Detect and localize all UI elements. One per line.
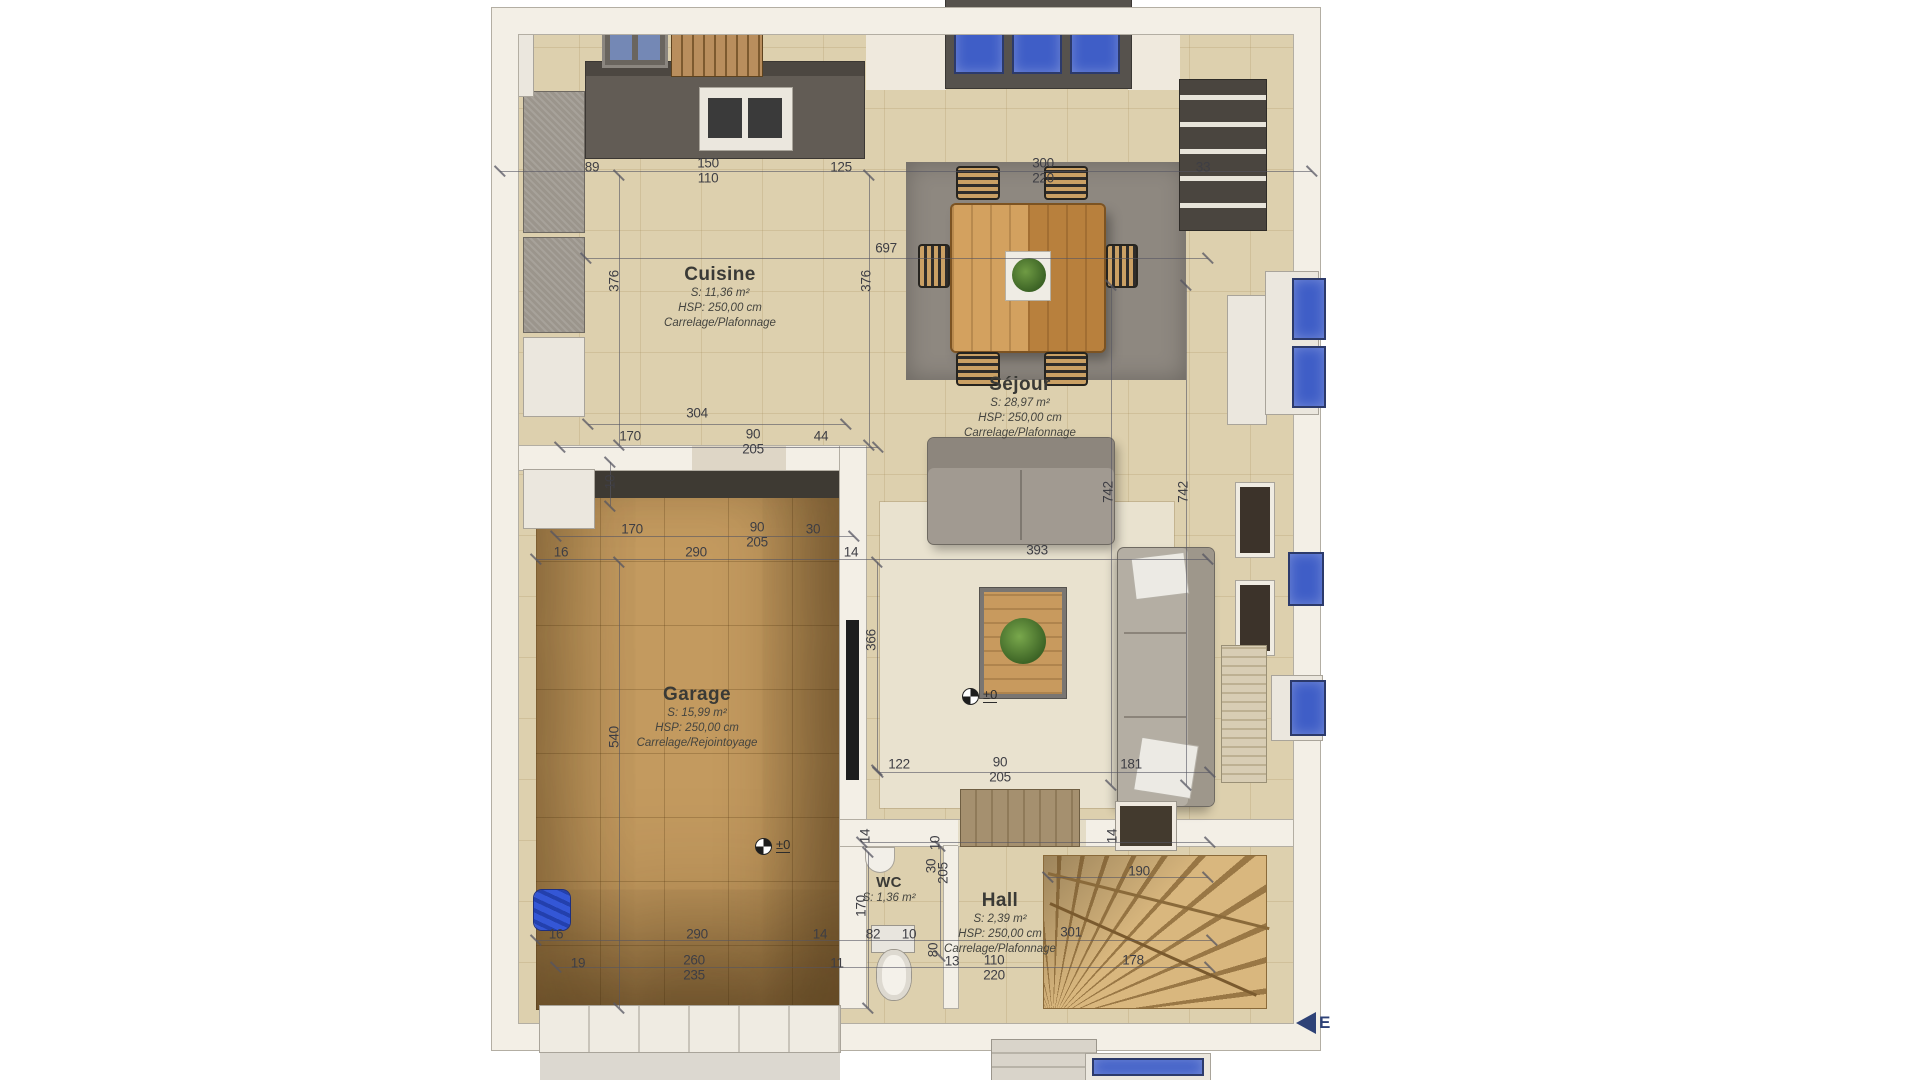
dimension-label: 14 <box>844 545 858 560</box>
dimension-label: 80 <box>926 943 941 957</box>
kitchen-tall-unit <box>524 238 584 332</box>
sejour-top-wall <box>866 34 946 90</box>
wall-picture <box>1240 585 1270 651</box>
dimension-label: 10 <box>928 836 943 850</box>
dimension-label: 300 <box>1032 156 1054 171</box>
sink-basin-right <box>748 98 782 138</box>
room-finish: Carrelage/Plafonnage <box>664 316 776 331</box>
level-marker-icon <box>755 838 772 855</box>
pergola-planks <box>672 12 762 76</box>
dimension-label: 301 <box>1060 925 1082 940</box>
wall-picture <box>1240 487 1270 553</box>
garage-door <box>540 1006 840 1052</box>
dining-chair <box>1108 246 1136 286</box>
window-pane <box>610 18 632 60</box>
dimension-label: 89 <box>585 160 599 175</box>
room-height: HSP: 250,00 cm <box>637 721 758 736</box>
porch-glass-panel <box>1070 8 1120 74</box>
room-label-hall: Hall S: 2,39 m² HSP: 250,00 cm Carrelage… <box>944 890 1056 957</box>
dimension-label: 190 <box>1128 864 1150 879</box>
garage-back-wall-shadow <box>556 470 840 498</box>
kitchen-window <box>602 10 668 68</box>
sofa-horizontal <box>928 438 1114 544</box>
dimension-label: 16 <box>554 545 568 560</box>
dimension-label: 16 <box>549 927 563 942</box>
dimension-label: 10 <box>603 475 618 489</box>
dimension-line <box>588 424 846 425</box>
room-name: Garage <box>637 684 758 706</box>
room-name: WC <box>862 874 915 891</box>
sofa-cushion-divider <box>1124 632 1186 634</box>
window-pane <box>638 18 660 60</box>
dimension-label: 376 <box>607 270 622 292</box>
level-marker: ±0 <box>755 838 790 855</box>
dimension-label: 14 <box>1105 829 1120 843</box>
corner-shelving-unit <box>1180 80 1266 230</box>
porch-glass-panel <box>1012 8 1062 74</box>
dimension-line <box>556 967 1210 968</box>
dimension-label: 170 <box>621 522 643 537</box>
dimension-label: 82 <box>866 927 880 942</box>
dimension-label: 697 <box>875 241 897 256</box>
dimension-line <box>619 562 620 1008</box>
compass-east-icon: E <box>1296 1012 1330 1034</box>
room-name: Cuisine <box>664 264 776 286</box>
dimension-line <box>1111 285 1112 785</box>
dimension-label: 376 <box>859 270 874 292</box>
dimension-line <box>878 772 1210 773</box>
dimension-label: 30 <box>924 859 939 873</box>
dimension-label: 44 <box>814 429 828 444</box>
dimension-label: 290 <box>685 545 707 560</box>
dimension-line <box>862 842 1210 843</box>
dimension-label: 170 <box>619 429 641 444</box>
sejour-top-wall <box>1128 34 1180 90</box>
room-finish: Carrelage/Plafonnage <box>964 426 1076 441</box>
sofa-cushion-divider <box>1124 716 1186 718</box>
blue-object <box>534 890 570 930</box>
porch-glass-panel <box>954 8 1004 74</box>
room-height: HSP: 250,00 cm <box>664 301 776 316</box>
dining-chair <box>958 168 998 198</box>
level-marker-label: ±0 <box>983 688 997 703</box>
table-plant <box>1012 258 1046 292</box>
kitchen-cabinet <box>524 338 584 416</box>
dimension-label: 235 <box>683 968 705 983</box>
dimension-label: 366 <box>864 629 879 651</box>
dining-chair <box>920 246 948 286</box>
room-name: Hall <box>944 890 1056 912</box>
dimension-label: 220 <box>983 968 1005 983</box>
dimension-label: 19 <box>571 956 585 971</box>
dimension-line <box>877 562 878 770</box>
dimension-line <box>869 175 870 445</box>
radiator-bench <box>1228 296 1266 424</box>
sink-basin-left <box>708 98 742 138</box>
dimension-label: 742 <box>1101 481 1116 503</box>
dimension-label: 205 <box>989 770 1011 785</box>
dimension-label: 11 <box>830 956 843 971</box>
window-blind <box>1222 646 1266 782</box>
room-label-garage: Garage S: 15,99 m² HSP: 250,00 cm Carrel… <box>637 684 758 751</box>
dimension-label: 540 <box>607 726 622 748</box>
window-right-1b <box>1292 346 1326 408</box>
room-label-sejour: Séjour S: 28,97 m² HSP: 250,00 cm Carrel… <box>964 374 1076 441</box>
dimension-label: 304 <box>686 406 708 421</box>
room-label-cuisine: Cuisine S: 11,36 m² HSP: 250,00 cm Carre… <box>664 264 776 331</box>
room-area: S: 2,39 m² <box>944 912 1056 927</box>
dimension-line <box>500 171 1312 172</box>
dimension-line <box>619 175 620 445</box>
dimension-label: 178 <box>1122 953 1144 968</box>
level-marker: ±0 <box>962 688 997 705</box>
window-right-1 <box>1292 278 1326 340</box>
dimension-label: 205 <box>742 442 764 457</box>
dimension-label: 260 <box>683 953 705 968</box>
sofa-cushion-divider <box>1020 470 1022 540</box>
entry-steps <box>992 1040 1096 1080</box>
window-bottom <box>1092 1058 1204 1076</box>
compass-flag <box>1296 1012 1316 1034</box>
fridge <box>524 92 584 232</box>
chimney-block <box>493 30 533 96</box>
room-finish: Carrelage/Rejointoyage <box>637 736 758 751</box>
dimension-label: 393 <box>1026 543 1048 558</box>
toilet-bowl <box>877 950 911 1000</box>
dimension-label: 33 <box>1196 160 1210 175</box>
dimension-label: 205 <box>746 535 768 550</box>
dimension-line <box>586 258 1208 259</box>
tv-screen <box>846 620 859 780</box>
floor-plan-canvas: Cuisine S: 11,36 m² HSP: 250,00 cm Carre… <box>0 0 1920 1080</box>
dimension-label: 742 <box>1176 481 1191 503</box>
dimension-label: 122 <box>888 757 910 772</box>
floor-plan: Cuisine S: 11,36 m² HSP: 250,00 cm Carre… <box>0 0 1920 1080</box>
dimension-label: 220 <box>1032 171 1054 186</box>
level-marker-label: ±0 <box>776 838 790 853</box>
dimension-label: 90 <box>993 755 1007 770</box>
room-height: HSP: 250,00 cm <box>964 411 1076 426</box>
dimension-label: 14 <box>858 829 873 843</box>
room-area: S: 1,36 m² <box>862 891 915 906</box>
dimension-label: 110 <box>698 171 719 186</box>
dimension-line <box>560 447 878 448</box>
room-name: Séjour <box>964 374 1076 396</box>
room-label-wc: WC S: 1,36 m² <box>862 874 915 906</box>
dimension-line <box>536 559 1208 560</box>
room-area: S: 28,97 m² <box>964 396 1076 411</box>
dimension-label: 14 <box>813 927 827 942</box>
dimension-label: 10 <box>902 927 916 942</box>
room-area: S: 11,36 m² <box>664 286 776 301</box>
entry-rug <box>961 790 1079 846</box>
floor-art-frame <box>1120 806 1172 846</box>
dimension-label: 181 <box>1120 757 1142 772</box>
window-right-3 <box>1290 680 1326 736</box>
room-finish: Carrelage/Plafonnage <box>944 942 1056 957</box>
window-right-2 <box>1288 552 1324 606</box>
garage-apron <box>540 1052 840 1080</box>
room-height: HSP: 250,00 cm <box>944 927 1056 942</box>
dimension-label: 30 <box>806 522 820 537</box>
dimension-label: 125 <box>830 160 852 175</box>
door-opening-garage <box>692 446 786 470</box>
dimension-label: 150 <box>697 156 719 171</box>
dimension-line <box>1186 285 1187 785</box>
coffee-table-plant <box>1000 618 1046 664</box>
compass-label: E <box>1319 1013 1330 1033</box>
dimension-label: 290 <box>686 927 708 942</box>
garage-shelf <box>524 470 594 528</box>
dimension-label: 90 <box>746 427 760 442</box>
room-area: S: 15,99 m² <box>637 706 758 721</box>
level-marker-icon <box>962 688 979 705</box>
dimension-label: 90 <box>750 520 764 535</box>
